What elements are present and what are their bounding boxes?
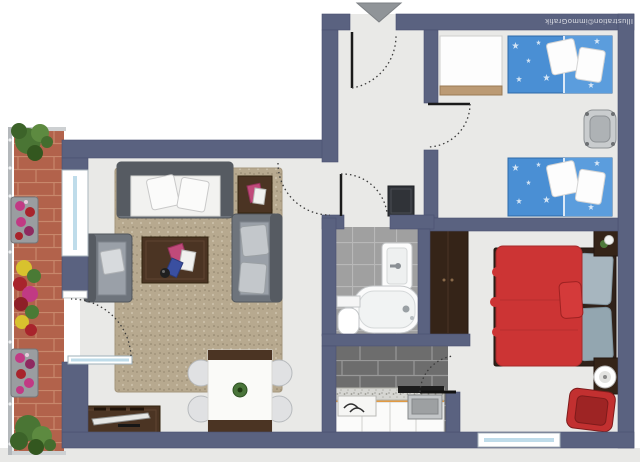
armchair: [84, 234, 132, 302]
page-margin: [0, 448, 640, 462]
tv-sideboard: [82, 406, 160, 436]
window-bedroom: [478, 433, 560, 447]
wall-bath-top-right: [390, 215, 434, 229]
wall-hall-children-upper: [424, 30, 438, 103]
bedroom-armchair: [566, 387, 617, 432]
bathtub: [353, 286, 420, 333]
wall-top-left-of-entrance: [322, 14, 350, 30]
watermark: Illustration©immoGrafik: [545, 17, 633, 26]
balcony: [8, 123, 66, 455]
wall-right: [618, 14, 634, 448]
washbasin: [382, 243, 412, 289]
wall-bath-right: [418, 229, 430, 335]
window-living: [62, 170, 88, 256]
kids-bed-2: [508, 158, 612, 216]
wall-hall-left: [322, 30, 338, 162]
sofa-two-seat: [232, 214, 282, 302]
desk-chair: [584, 110, 616, 148]
wall-kitchen-top: [322, 334, 470, 346]
wall-left-a: [62, 158, 88, 170]
kids-bed-1: [508, 36, 612, 93]
kids-wardrobe: [440, 36, 502, 95]
balcony-floor: [14, 130, 64, 454]
toilet: [337, 296, 360, 335]
nightstand-top: [594, 230, 618, 256]
flower-box-1: [11, 197, 38, 243]
flower-box-2: [11, 349, 38, 397]
nightstand-bottom: [594, 358, 618, 394]
stove: [408, 395, 442, 419]
wall-kitchen-left: [322, 346, 336, 432]
dining-table: [208, 350, 272, 432]
sink: [338, 396, 376, 416]
hall: [388, 186, 414, 216]
coffee-table: [142, 237, 208, 283]
double-bed: [490, 246, 616, 366]
wall-bath-left: [322, 218, 336, 336]
sofa-large: [117, 162, 233, 218]
wall-left-c: [62, 362, 88, 432]
wall-hall-children-lower: [424, 150, 438, 218]
wall-living-top: [62, 140, 334, 158]
balcony-railing: [8, 127, 12, 455]
side-table: [238, 176, 272, 213]
hall-cabinet: [388, 186, 414, 216]
wall-children-bedroom: [424, 218, 618, 231]
bedroom-wardrobe: [428, 228, 468, 335]
floor-plan: Illustration©immoGrafik: [0, 0, 640, 462]
wall-kitchen-right: [446, 392, 460, 432]
